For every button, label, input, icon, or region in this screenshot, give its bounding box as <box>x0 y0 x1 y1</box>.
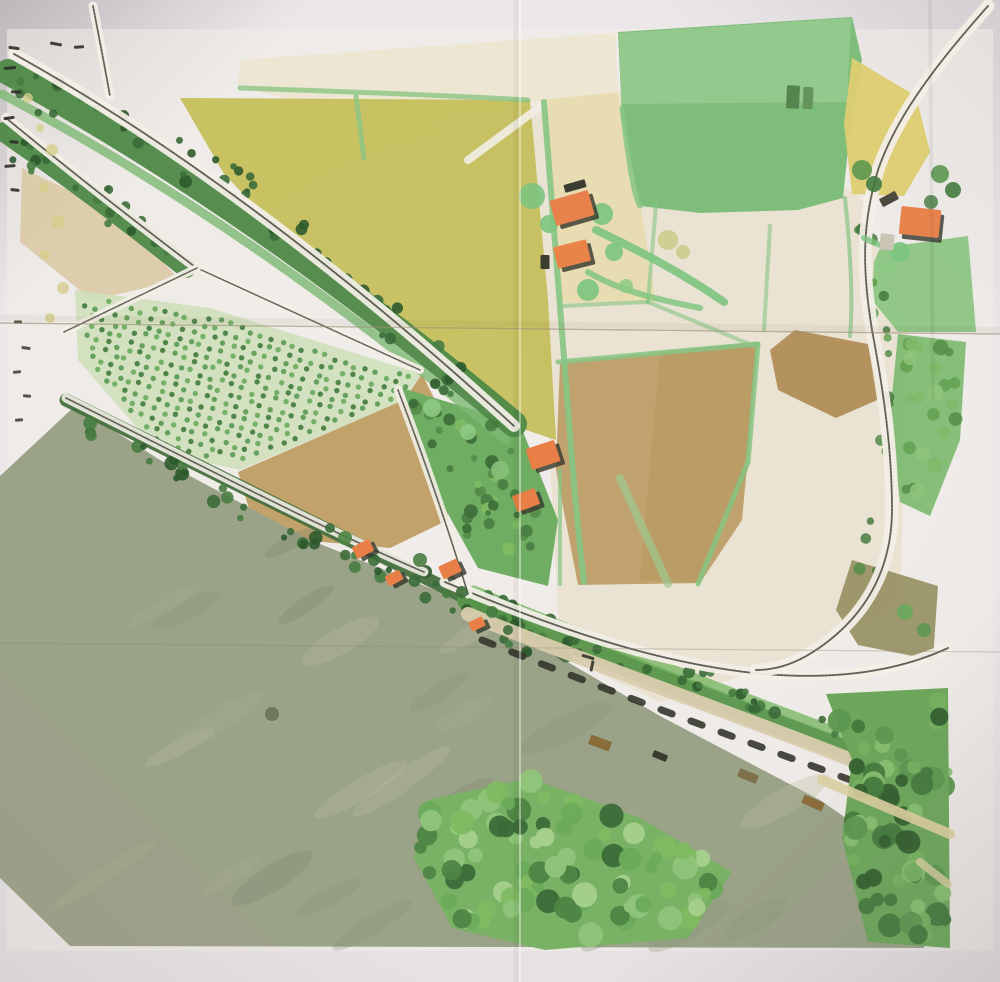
tree-avenue-2-trees <box>9 156 16 163</box>
orchard-stipple <box>139 343 144 348</box>
boundary-tree-dabs <box>374 567 382 575</box>
tree-avenue-trees <box>385 333 396 344</box>
forest-corner-trees <box>894 748 907 761</box>
orchard-stipple <box>223 331 228 336</box>
orchard-stipple <box>165 402 170 407</box>
wooded-grove-trees <box>462 524 471 533</box>
orchard-stipple <box>95 367 100 372</box>
orchard-stipple <box>114 354 119 359</box>
roadside-tree-dabs <box>728 689 736 697</box>
orchard-stipple <box>198 404 203 409</box>
wooded-grove-trees <box>502 542 515 555</box>
roadside-tree-dabs <box>768 706 781 719</box>
right-strip-trees <box>914 392 925 403</box>
orchard-stipple <box>135 361 140 366</box>
orchard-stipple <box>169 362 174 367</box>
forest-grove-trees <box>453 909 472 928</box>
forest-grove-trees <box>561 803 582 824</box>
right-road-trees <box>884 334 892 342</box>
boundary-tree-dabs <box>240 504 247 511</box>
orchard-stipple <box>220 377 225 382</box>
orchard-stipple <box>276 417 281 422</box>
orchard-stipple <box>233 335 238 340</box>
right-road-trees <box>885 350 892 357</box>
roadside-tree-dabs <box>742 688 749 695</box>
forest-corner-trees <box>896 830 915 849</box>
orchard-stipple <box>217 420 222 425</box>
orchard-stipple <box>156 329 161 334</box>
orchard-stipple <box>151 345 156 350</box>
boundary-tree-dabs <box>140 443 147 450</box>
orchard-stipple <box>288 413 293 418</box>
orchard-stipple <box>163 371 168 376</box>
paint-splotches <box>51 215 65 229</box>
orchard-stipple <box>198 442 203 447</box>
forest-grove-trees <box>519 769 543 793</box>
orchard-stipple <box>173 381 178 386</box>
orchard-stipple <box>127 348 132 353</box>
orchard-stipple <box>147 326 152 331</box>
orchard-stipple <box>332 358 337 363</box>
forest-grove-trees <box>619 848 642 871</box>
orchard-stipple <box>106 299 111 304</box>
orchard-stipple <box>266 375 271 380</box>
right-strip-trees <box>905 393 914 402</box>
orchard-stipple <box>282 440 287 445</box>
orchard-stipple <box>240 456 245 461</box>
orchard-stipple <box>406 374 411 379</box>
lawn-and-tree-blobs <box>931 165 949 183</box>
orchard-stipple <box>369 382 374 387</box>
forest-corner-trees <box>844 816 868 840</box>
orchard-stipple <box>154 334 159 339</box>
orchard-stipple <box>257 433 262 438</box>
orchard-stipple <box>273 395 278 400</box>
dark-annexes-and-sheds <box>802 87 813 109</box>
orchard-stipple <box>272 367 277 372</box>
orchard-stipple <box>350 372 355 377</box>
orchard-stipple <box>268 407 273 412</box>
boundary-tree-dabs <box>281 534 287 540</box>
orchard-stipple <box>144 365 149 370</box>
forest-grove-trees <box>599 804 623 828</box>
orchard-stipple <box>185 378 190 383</box>
right-strip-trees <box>903 441 916 454</box>
orchard-stipple <box>166 332 171 337</box>
orchard-stipple <box>254 379 259 384</box>
orchard-stipple <box>188 439 193 444</box>
tree-avenue-trees <box>493 421 499 427</box>
wooded-grove-trees <box>475 481 482 488</box>
orchard-stipple <box>324 377 329 382</box>
orchard-stipple <box>122 388 127 393</box>
wooded-grove-trees <box>475 487 483 495</box>
orchard-stipple <box>378 392 383 397</box>
orchard-stipple <box>228 393 233 398</box>
forest-grove-trees <box>502 796 516 810</box>
wooded-grove-trees <box>436 427 443 434</box>
orchard-stipple <box>243 409 248 414</box>
orchard-stipple <box>106 339 111 344</box>
orchard-stipple <box>273 356 278 361</box>
orchard-stipple <box>223 401 228 406</box>
orchard-stipple <box>119 365 124 370</box>
orchard-stipple <box>218 348 223 353</box>
orchard-stipple <box>345 382 350 387</box>
forest-grove-trees <box>450 810 475 835</box>
orchard-stipple <box>224 440 229 445</box>
orchard-stipple <box>329 397 334 402</box>
tree-avenue-2-trees <box>72 184 79 191</box>
orchard-stipple <box>355 394 360 399</box>
orchard-stipple <box>327 404 332 409</box>
orchard-stipple <box>261 393 266 398</box>
orchard-stipple <box>202 431 207 436</box>
lawn-and-tree-blobs <box>265 707 279 721</box>
orchard-stipple <box>367 388 372 393</box>
orchard-stipple <box>154 426 159 431</box>
orchard-stipple <box>312 349 317 354</box>
forest-corner-trees <box>909 925 928 944</box>
lawn-and-tree-blobs <box>880 260 896 276</box>
boundary-tree-dabs <box>207 495 220 508</box>
orchard-stipple <box>217 449 222 454</box>
orchard-stipple <box>189 429 194 434</box>
lawn-and-tree-blobs <box>917 623 931 637</box>
orchard-stipple <box>372 370 377 375</box>
orchard-stipple <box>209 438 214 443</box>
forest-grove-trees <box>468 848 483 863</box>
wooded-grove-trees <box>409 399 419 409</box>
orchard-stipple <box>258 364 263 369</box>
orchard-stipple <box>317 373 322 378</box>
orchard-stipple <box>224 362 229 367</box>
orchard-stipple <box>175 406 180 411</box>
orchard-stipple <box>382 384 387 389</box>
forest-corner-trees <box>930 708 948 726</box>
orchard-stipple <box>301 415 306 420</box>
orchard-stipple <box>322 352 327 357</box>
boundary-tree-dabs <box>287 528 294 535</box>
orchard-stipple <box>336 380 341 385</box>
orchard-stipple <box>165 430 170 435</box>
wooded-grove-trees <box>443 414 455 426</box>
paint-splotches <box>39 183 49 193</box>
orchard-stipple <box>152 405 157 410</box>
orchard-stipple <box>274 427 279 432</box>
tree-avenue-trees <box>439 385 449 395</box>
forest-grove-trees <box>599 828 612 841</box>
orchard-stipple <box>151 376 156 381</box>
lawn-and-tree-blobs <box>491 461 509 479</box>
orchard-stipple <box>144 424 149 429</box>
orchard-stipple <box>356 384 361 389</box>
orchard-stipple <box>397 371 402 376</box>
orchard-stipple <box>121 396 126 401</box>
orchard-stipple <box>281 369 286 374</box>
orchard-stipple <box>254 450 259 455</box>
orchard-stipple <box>126 379 131 384</box>
orchard-stipple <box>215 388 220 393</box>
orchard-stipple <box>245 339 250 344</box>
boundary-tree-dabs <box>83 416 97 430</box>
wooded-grove-trees <box>471 455 477 461</box>
forest-grove-trees <box>537 791 550 804</box>
orchard-stipple <box>239 355 244 360</box>
orchard-stipple <box>150 416 155 421</box>
tree-avenue-trees <box>35 109 43 117</box>
orchard-stipple <box>173 312 178 317</box>
orchard-stipple <box>325 416 330 421</box>
orchard-stipple <box>285 431 290 436</box>
orchard-stipple <box>140 401 145 406</box>
orchard-stipple <box>210 365 215 370</box>
orchard-stipple <box>108 362 113 367</box>
orchard-stipple <box>181 427 186 432</box>
forest-corner-trees <box>852 720 866 734</box>
boundary-tree-dabs <box>409 575 421 587</box>
dark-annexes-and-sheds <box>786 85 800 109</box>
orchard-stipple <box>145 354 150 359</box>
lawn-and-tree-blobs <box>897 604 913 620</box>
boundary-tree-dabs <box>386 567 392 573</box>
forest-corner-trees <box>828 709 852 733</box>
orchard-stipple <box>238 364 243 369</box>
wooded-grove-trees <box>488 500 499 511</box>
right-strip-trees <box>928 387 943 402</box>
tree-avenue-trees <box>180 171 186 177</box>
wooded-grove-trees <box>526 542 535 551</box>
orchard-stipple <box>328 365 333 370</box>
lawn-and-tree-blobs <box>338 531 352 545</box>
orchard-stipple <box>317 402 322 407</box>
forest-grove-trees <box>441 894 457 910</box>
right-strip-trees <box>903 353 915 365</box>
boundary-tree-dabs <box>340 550 351 561</box>
forest-grove-trees <box>420 810 441 831</box>
orchard-stipple <box>321 425 326 430</box>
lawn-and-tree-blobs <box>605 243 623 261</box>
orchard-stipple <box>133 391 138 396</box>
orchard-stipple <box>180 327 185 332</box>
orange-roof-buildings <box>899 206 942 238</box>
orchard-stipple <box>230 452 235 457</box>
wooded-grove-trees <box>428 439 437 448</box>
orchard-stipple <box>233 404 238 409</box>
orchard-stipple <box>90 354 95 359</box>
lawn-and-tree-blobs <box>460 424 476 440</box>
tree-avenue-trees <box>379 332 385 338</box>
lawn-and-tree-blobs <box>658 230 678 250</box>
right-strip-trees <box>915 343 924 352</box>
orchard-stipple <box>298 348 303 353</box>
orchard-stipple <box>239 385 244 390</box>
dark-annexes-and-sheds <box>879 233 895 250</box>
wooded-grove-trees <box>520 525 532 537</box>
orchard-stipple <box>159 360 164 365</box>
orchard-stipple <box>281 340 286 345</box>
orchard-stipple <box>360 406 365 411</box>
orchard-stipple <box>244 368 249 373</box>
lawn-and-tree-blobs <box>866 176 882 192</box>
orchard-stipple <box>181 387 186 392</box>
orchard-stipple <box>287 353 292 358</box>
boundary-tree-dabs <box>432 581 438 587</box>
orchard-stipple <box>349 412 354 417</box>
orchard-stipple <box>297 357 302 362</box>
forest-grove-trees <box>623 822 645 844</box>
orchard-stipple <box>251 351 256 356</box>
orchard-stipple <box>303 409 308 414</box>
orchard-stipple <box>156 397 161 402</box>
orchard-stipple <box>118 376 123 381</box>
boundary-tree-dabs <box>299 540 308 549</box>
orchard-stipple <box>292 436 297 441</box>
orchard-stipple <box>223 370 228 375</box>
forest-grove-trees <box>635 896 651 912</box>
orchard-stipple <box>268 436 273 441</box>
right-strip-trees <box>946 399 958 411</box>
forest-corner-trees <box>864 869 882 887</box>
orchard-stipple <box>403 384 408 389</box>
forest-corner-trees <box>857 742 870 755</box>
green-field-light <box>619 18 851 104</box>
orchard-stipple <box>93 337 98 342</box>
orchard-stipple <box>388 397 393 402</box>
orchard-stipple <box>84 333 89 338</box>
orchard-stipple <box>176 436 181 441</box>
orchard-stipple <box>193 421 198 426</box>
orchard-stipple <box>314 379 319 384</box>
orchard-stipple <box>263 386 268 391</box>
orchard-stipple <box>236 395 241 400</box>
wooded-grove-trees <box>484 518 495 529</box>
orchard-stipple <box>196 342 201 347</box>
orchard-stipple <box>103 347 108 352</box>
orchard-stipple <box>242 447 247 452</box>
orchard-stipple <box>232 344 237 349</box>
orchard-stipple <box>249 392 254 397</box>
orchard-stipple <box>183 345 188 350</box>
orchard-stipple <box>248 359 253 364</box>
orchard-stipple <box>236 433 241 438</box>
tree-avenue-trees <box>49 109 58 118</box>
forest-grove-trees <box>660 882 676 898</box>
orchard-stipple <box>179 397 184 402</box>
orchard-stipple <box>232 445 237 450</box>
orchard-stipple <box>279 380 284 385</box>
orchard-stipple <box>288 384 293 389</box>
orchard-stipple <box>257 334 262 339</box>
right-road-trees <box>879 291 889 301</box>
orchard-stipple <box>268 337 273 342</box>
orchard-stipple <box>129 339 134 344</box>
wooded-grove-trees <box>507 448 514 455</box>
right-road-trees <box>861 533 872 544</box>
orchard-stipple <box>187 367 192 372</box>
forest-grove-trees <box>675 842 692 859</box>
tree-avenue-trees <box>299 220 309 230</box>
orchard-stipple <box>319 364 324 369</box>
orchard-stipple <box>255 413 260 418</box>
orchard-stipple <box>121 355 126 360</box>
orchard-stipple <box>117 333 122 338</box>
forest-corner-trees <box>876 726 894 744</box>
orchard-stipple <box>229 381 234 386</box>
lawn-and-tree-blobs <box>945 182 961 198</box>
orchard-stipple <box>242 378 247 383</box>
orchard-stipple <box>204 355 209 360</box>
lawn-and-tree-blobs <box>325 523 335 533</box>
orchard-stipple <box>169 392 174 397</box>
boundary-tree-dabs <box>309 531 323 545</box>
tree-avenue-trees <box>249 181 258 190</box>
orchard-stipple <box>197 373 202 378</box>
boundary-tree-dabs <box>180 469 187 476</box>
hand-painted-map <box>0 0 1000 982</box>
orchard-stipple <box>393 379 398 384</box>
orchard-stipple <box>212 397 217 402</box>
orchard-stipple <box>99 327 104 332</box>
forest-corner-trees <box>884 893 897 906</box>
orchard-stipple <box>283 399 288 404</box>
orchard-stipple <box>187 406 192 411</box>
forest-grove-trees <box>545 856 567 878</box>
orchard-stipple <box>262 354 267 359</box>
orchard-stipple <box>212 334 217 339</box>
orchard-stipple <box>253 421 258 426</box>
boundary-tree-dabs <box>420 592 432 604</box>
orchard-stipple <box>114 345 119 350</box>
orchard-stipple <box>139 372 144 377</box>
orchard-stipple <box>231 373 236 378</box>
paint-splotches <box>40 250 50 260</box>
orchard-stipple <box>193 391 198 396</box>
orchard-stipple <box>106 371 111 376</box>
orchard-stipple <box>258 343 263 348</box>
tree-avenue-2-trees <box>27 161 36 170</box>
boundary-tree-dabs <box>442 589 451 598</box>
orchard-stipple <box>341 399 346 404</box>
orchard-stipple <box>152 306 157 311</box>
orchard-stipple <box>289 344 294 349</box>
orchard-stipple <box>274 390 279 395</box>
orchard-stipple <box>204 453 209 458</box>
orchard-stipple <box>249 399 254 404</box>
orchard-stipple <box>192 359 197 364</box>
orchard-stipple <box>92 307 97 312</box>
orchard-stipple <box>137 310 142 315</box>
orchard-stipple <box>359 375 364 380</box>
roadside-tree-dabs <box>696 682 703 689</box>
orchard-stipple <box>332 417 337 422</box>
boundary-tree-dabs <box>349 561 361 573</box>
orchard-stipple <box>107 331 112 336</box>
orchard-stipple <box>311 419 316 424</box>
orchard-stipple <box>195 380 200 385</box>
tree-avenue-trees <box>430 379 441 390</box>
survey-border-marks <box>15 418 23 422</box>
orchard-stipple <box>266 415 271 420</box>
lawn-and-tree-blobs <box>413 553 427 567</box>
orchard-stipple <box>162 412 167 417</box>
orchard-stipple <box>241 345 246 350</box>
orchard-stipple <box>171 422 176 427</box>
boundary-tree-dabs <box>450 607 456 613</box>
orchard-stipple <box>362 366 367 371</box>
orchard-stipple <box>256 403 261 408</box>
right-strip-trees <box>949 377 961 389</box>
